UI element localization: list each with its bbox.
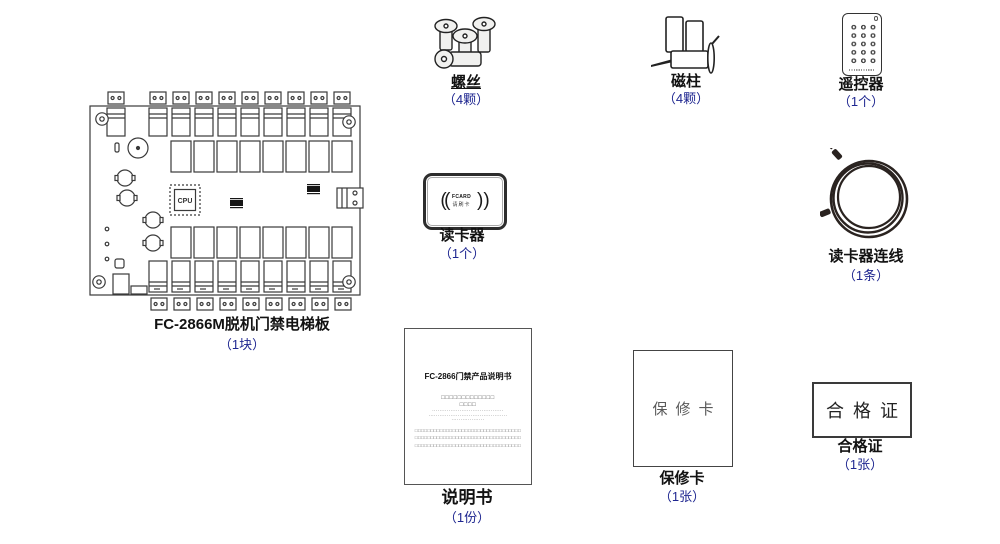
reader-hint-text: 请刷卡: [452, 203, 470, 208]
cpu-chip-icon: CPU: [170, 185, 200, 215]
warranty-card-inner-text: 保修卡: [644, 398, 721, 419]
led-icon: [105, 257, 109, 261]
magnets-count: （4颗）: [586, 91, 786, 106]
led-icon: [105, 227, 109, 231]
cable-count: （1条）: [766, 268, 966, 283]
certificate-inner-text: 合格证: [817, 397, 907, 423]
manual-placeholder-line: □□□□: [405, 402, 531, 409]
manual-booklet: FC-2866门禁产品说明书 □□□□□□□□□□□□□ □□□□ ······…: [404, 328, 532, 485]
remote-led-icon: [874, 16, 879, 21]
card-reader-icon: (( FCARD 请刷卡 )): [423, 173, 507, 230]
circuit-board-illustration: CPU: [85, 88, 367, 316]
certificate-label: 合格证: [760, 438, 960, 455]
remote-count: （1个）: [761, 94, 961, 109]
screws-label: 螺丝: [366, 74, 566, 91]
screw-hole-icon: [93, 276, 105, 288]
certificate-count: （1张）: [760, 457, 960, 472]
warranty-label: 保修卡: [582, 470, 782, 487]
reader-count: （1个）: [362, 246, 562, 261]
magnetic-pillars-icon: [651, 12, 723, 74]
manual-placeholder-line: □□□□□□□□□□□□□: [405, 395, 531, 402]
remote-buttons: [848, 22, 877, 64]
warranty-card: 保修卡: [633, 350, 733, 467]
reader-label: 读卡器: [362, 227, 562, 244]
reader-cable-icon: [820, 148, 914, 246]
warranty-count: （1张）: [582, 489, 782, 504]
remote-label: 遥控器: [761, 76, 961, 93]
packing-list-diagram: CPU FC-2866M脱机门禁电梯板 （1块） 螺丝 （4颗）: [0, 0, 1000, 544]
manual-label: 说明书: [367, 489, 567, 506]
screw-hole-icon: [343, 276, 355, 288]
remote-control-icon: [842, 13, 882, 76]
reader-brand-text: FCARD: [452, 195, 471, 200]
power-connector-icon: [337, 188, 363, 208]
manual-placeholder-line: □□□□□□□□□□□□□□□□□□□□□□□□□□□□□□□□□□: [405, 443, 531, 450]
wave-left-icon: ((: [440, 191, 448, 213]
board-label: FC-2866M脱机门禁电梯板: [142, 316, 342, 333]
manual-title: FC-2866门禁产品说明书: [405, 371, 531, 382]
magnets-label: 磁柱: [586, 73, 786, 90]
manual-placeholder-line: □□□□□□□□□□□□□□□□□□□□□□□□□□□□□□□□□□: [405, 428, 531, 435]
manual-placeholder-line: □□□□□□□□□□□□□□□□□□□□□□□□□□□□□□□□□□: [405, 435, 531, 442]
screws-count: （4颗）: [366, 92, 566, 107]
led-icon: [105, 242, 109, 246]
certificate-card: 合格证: [812, 382, 912, 438]
svg-text:CPU: CPU: [178, 198, 193, 205]
manual-count: （1份）: [367, 510, 567, 525]
manual-placeholder-line: ··················: [405, 418, 531, 423]
screws-icon: [431, 14, 503, 74]
remote-fine-print: [849, 69, 875, 71]
board-count: （1块）: [142, 337, 342, 352]
buzzer-icon: [128, 138, 148, 158]
screw-hole-icon: [96, 113, 108, 125]
cable-label: 读卡器连线: [766, 248, 966, 265]
screw-hole-icon: [343, 116, 355, 128]
wave-right-icon: )): [477, 191, 490, 213]
